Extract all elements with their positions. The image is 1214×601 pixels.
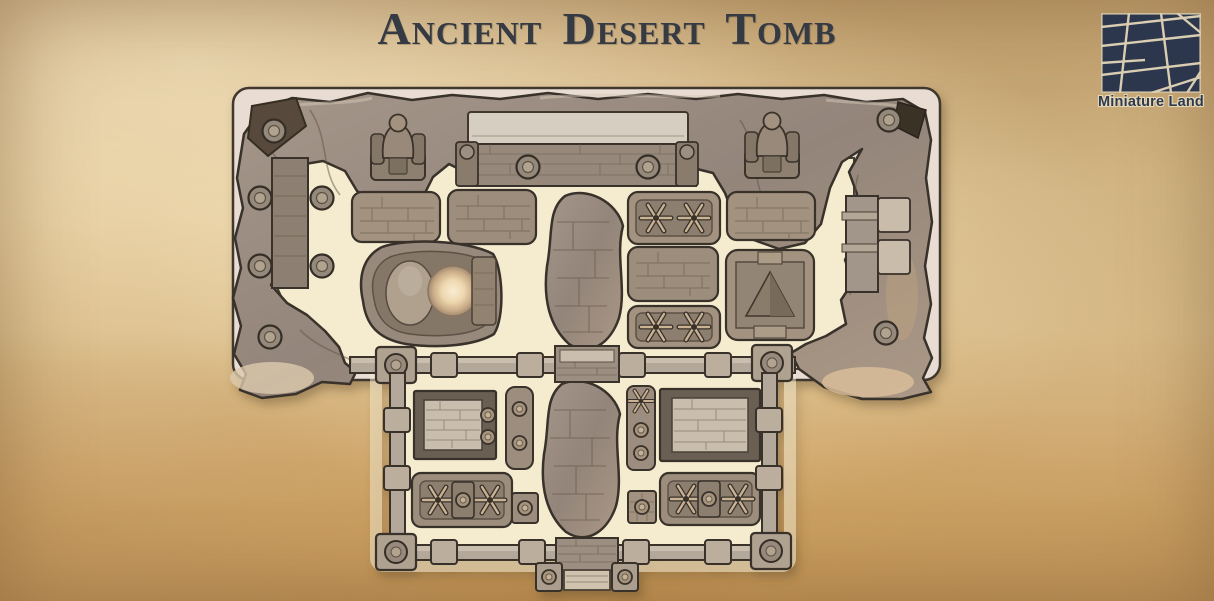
brazier-stand-right [627,386,655,470]
spike-trap-platform [628,306,720,348]
pyramid-altar-platform [726,250,814,340]
spike-trap-platform [412,473,512,527]
page-title: Ancient Desert Tomb [0,2,1214,55]
brick-platform [352,192,440,242]
spike-trap-platform [628,192,720,244]
tomb-model [230,88,940,591]
tomb-map-illustration [0,0,1214,601]
brick-chamber-left [414,391,496,459]
glowing-orb [428,266,478,316]
brick-chamber-right [660,389,760,461]
brazier-stand-left [506,387,533,469]
gate-steps [564,570,610,590]
brick-platform [727,192,815,241]
grand-entrance-gate [456,112,698,186]
courtyard-gate [556,538,618,572]
brand-logo: Miniature Land [1098,13,1204,110]
rubble-divider-lower [543,381,620,537]
rock-highlight [822,367,914,397]
brick-tile [628,491,656,523]
rock-highlight [230,362,314,394]
rubble-divider-upper [546,193,623,349]
brick-platform [448,190,536,244]
brazier-tile [512,493,538,523]
gate-pillar-left [536,563,562,591]
brand-name: Miniature Land [1098,94,1204,110]
brick-platform [628,247,718,301]
product-image: Ancient Desert Tomb Miniature Land [0,0,1214,601]
sarcophagus-pit [361,242,501,347]
middle-gate [555,346,619,382]
spike-trap-platform [660,473,760,525]
gate-pillar-right [612,563,638,591]
miniature-land-logo-icon [1101,13,1201,93]
